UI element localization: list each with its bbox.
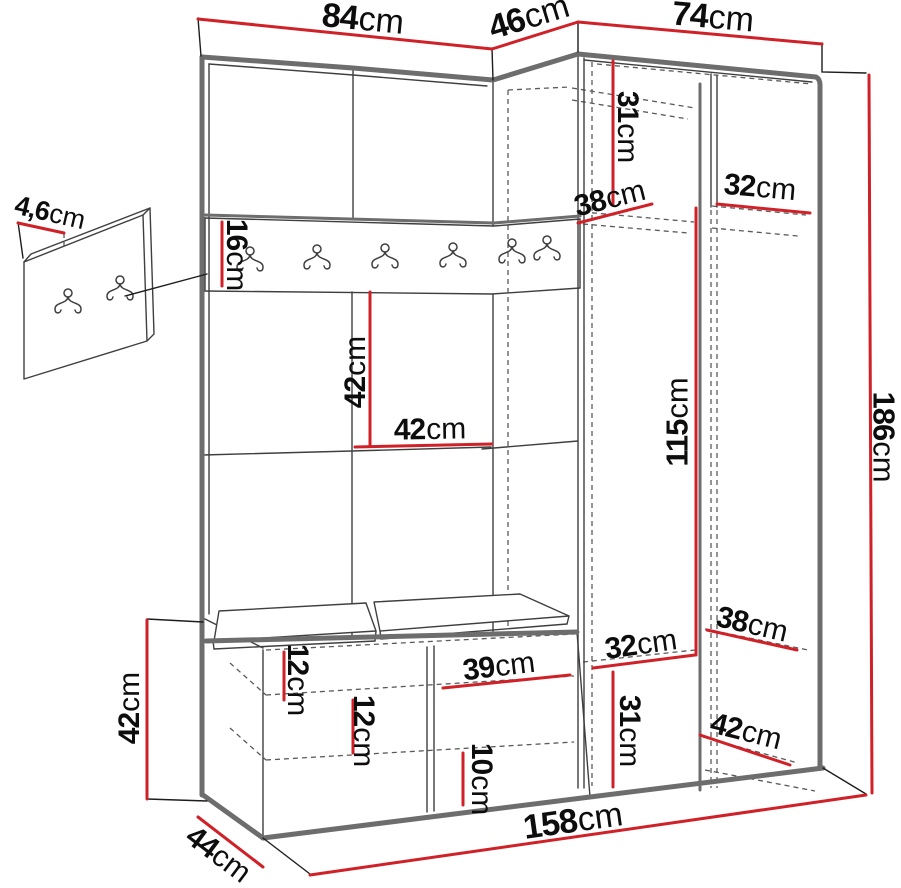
- dim-label-42cm-shelf: 42cm: [394, 414, 467, 445]
- hook-icon: [499, 239, 525, 263]
- dim-label-31cm-top: 31cm: [612, 91, 642, 163]
- dim-label-16cm: 16cm: [221, 219, 251, 291]
- dim-label-10cm: 10cm: [466, 743, 496, 815]
- hook-icon: [440, 243, 466, 267]
- dim-label-186cm: 186cm: [869, 391, 900, 482]
- dim-label-74cm: 74cm: [671, 0, 756, 38]
- dim-label-32cm-top: 32cm: [723, 170, 798, 206]
- hook-icon: [304, 245, 330, 269]
- dim-label-12cm-shelf: 12cm: [348, 695, 378, 767]
- diagram-stage: 84cm 46cm 74cm 4,6cm 16cm 31cm 38cm 32cm…: [0, 0, 901, 888]
- dim-label-31cm-bottom: 31cm: [614, 695, 644, 767]
- hook-icon: [372, 244, 398, 268]
- hook-icon: [534, 236, 560, 260]
- dim-label-42cm-bench-height: 42cm: [115, 672, 145, 744]
- dim-label-42cm-vertical: 42cm: [341, 336, 371, 408]
- dim-label-115cm: 115cm: [662, 377, 693, 466]
- dim-label-12cm-seat: 12cm: [282, 644, 312, 716]
- dim-label-84cm: 84cm: [320, 0, 405, 40]
